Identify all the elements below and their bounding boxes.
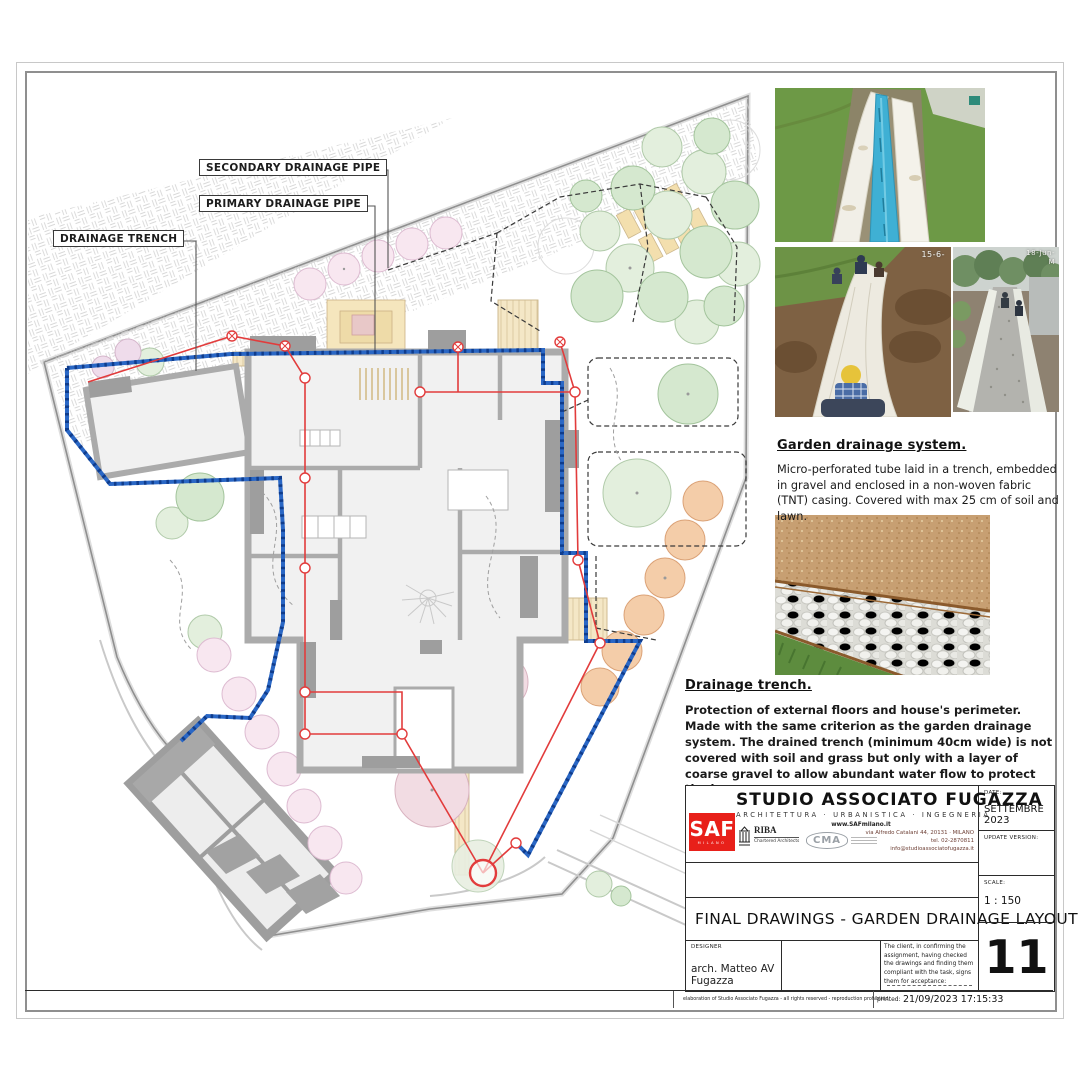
acceptance-text: The client, in confirming the assignment…: [881, 941, 978, 988]
label-secondary-drainage-pipe: SECONDARY DRAINAGE PIPE: [199, 159, 387, 176]
photo3-timestamp-line2: M: [1048, 258, 1055, 266]
designer-label: DESIGNER: [691, 944, 722, 950]
scale-cell: SCALE: 1 : 150: [979, 876, 1054, 923]
studio-phone: tel. 02-2870811: [866, 837, 974, 845]
footer-divider-1: [673, 991, 674, 1008]
empty-cell: [782, 941, 881, 991]
photo-laying-fabric: 15-6-: [775, 247, 951, 417]
label-drainage-trench: DRAINAGE TRENCH: [53, 230, 184, 247]
drawing-sheet: SECONDARY DRAINAGE PIPE PRIMARY DRAINAGE…: [0, 0, 1080, 1080]
studio-website: www.SAFmilano.it: [806, 822, 916, 828]
designer-cell: DESIGNER arch. Matteo AV Fugazza: [686, 941, 782, 991]
signature-line: [887, 985, 972, 986]
update-version-cell: UPDATE VERSION:: [979, 831, 1054, 876]
photo3-timestamp: 18-Jun-: [1026, 249, 1055, 257]
update-version-label: UPDATE VERSION:: [984, 835, 1038, 841]
date-cell: DATE: SETTEMBRE 2023: [979, 786, 1054, 831]
cma-text: CMA: [806, 832, 848, 849]
title-block: SAF MILANO STUDIO ASSOCIATO FUGAZZA ARCH…: [685, 785, 1055, 992]
studio-email: info@studioassociatofugazza.it: [866, 845, 974, 853]
studio-name: STUDIO ASSOCIATO FUGAZZA: [736, 790, 978, 810]
photo-gravel-trench: 18-Jun- M: [953, 247, 1059, 412]
collection-well: [470, 860, 496, 886]
studio-subtitle: ARCHITETTURA · URBANISTICA · INGEGNERIA: [736, 811, 978, 819]
title-block-header: SAF MILANO STUDIO ASSOCIATO FUGAZZA ARCH…: [686, 786, 979, 863]
riba-subtext: Chartered Architects: [754, 837, 799, 844]
scale-label: SCALE:: [984, 880, 1005, 886]
acceptance-cell: The client, in confirming the assignment…: [881, 941, 979, 991]
photo2-timestamp: 15-6-: [921, 250, 945, 259]
date-value: SETTEMBRE 2023: [984, 804, 1054, 826]
garden-drainage-heading: Garden drainage system.: [777, 438, 966, 453]
riba-text: RIBA: [754, 826, 799, 835]
sheet-number: 11: [984, 930, 1048, 984]
photo-drainage-edge: [775, 515, 990, 675]
drawing-title-cell: FINAL DRAWINGS - GARDEN DRAINAGE LAYOUT: [686, 898, 979, 941]
studio-address-block: via Alfredo Catalani 44, 20131 · MILANO …: [866, 829, 974, 853]
scale-value: 1 : 150: [984, 895, 1021, 907]
saf-logo-subtext: MILANO: [698, 841, 727, 845]
date-label: DATE:: [984, 790, 1002, 796]
footer-strip: elaboration of Studio Associato Fugazza …: [25, 990, 1053, 1008]
printed-label: printed:: [877, 996, 901, 1003]
drainage-trench-heading: Drainage trench.: [685, 678, 812, 693]
photo-pipe-in-trench: [775, 88, 985, 242]
studio-address: via Alfredo Catalani 44, 20131 · MILANO: [866, 829, 974, 837]
designer-name: arch. Matteo AV Fugazza: [691, 963, 781, 987]
riba-columns-icon: [738, 826, 751, 846]
title-block-spacer: [686, 863, 979, 898]
label-primary-drainage-pipe: PRIMARY DRAINAGE PIPE: [199, 195, 368, 212]
saf-logo: SAF MILANO: [689, 813, 735, 851]
drainage-trench-body1: Protection of external floors and house'…: [685, 703, 1061, 719]
sheet-number-cell: 11: [979, 923, 1054, 991]
saf-logo-text: SAF: [689, 819, 734, 839]
copyright-note: elaboration of Studio Associato Fugazza …: [683, 997, 888, 1002]
printed-timestamp: 21/09/2023 17:15:33: [903, 994, 1003, 1005]
garden-drainage-body: Micro-perforated tube laid in a trench, …: [777, 462, 1061, 524]
riba-logo: RIBA Chartered Architects: [738, 826, 799, 846]
